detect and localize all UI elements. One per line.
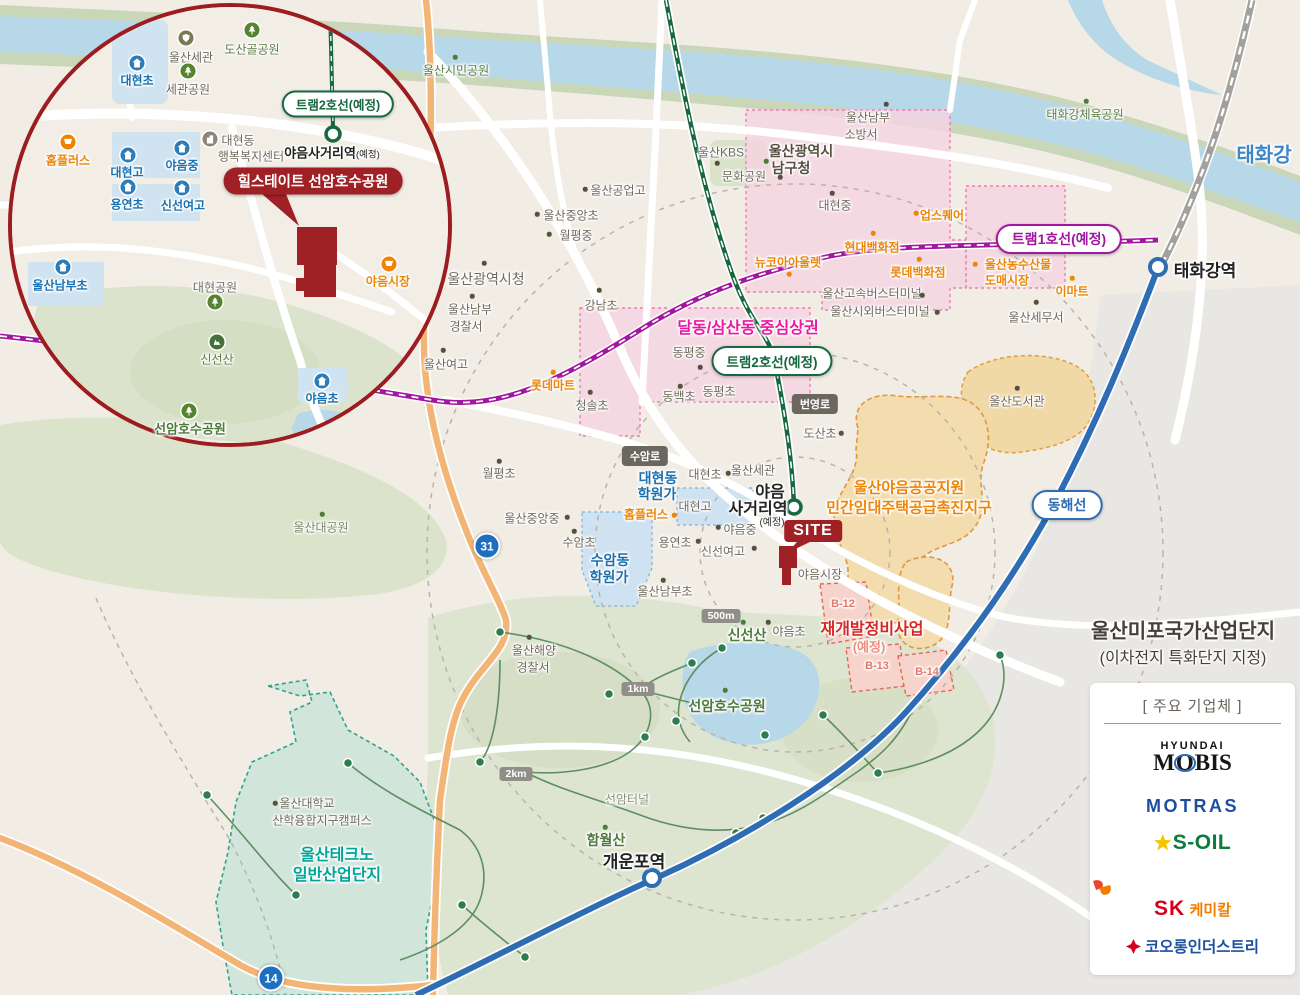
poi-dot (527, 635, 532, 640)
poi-dot (917, 257, 922, 262)
inset-geometry (8, 3, 452, 447)
label-customs-main: 울산세관 (731, 462, 775, 479)
poi-dot (696, 539, 701, 544)
label-hagwon1-l2: 학원가 (638, 484, 677, 504)
soil-wordmark: S-OIL (1173, 831, 1232, 854)
poi-dot (741, 620, 746, 625)
label-inset-seonam-park: 선암호수공원 (154, 419, 226, 438)
poi-dot (830, 191, 835, 196)
donghae-badge: 동해선 (1032, 490, 1103, 520)
radius-500m-label: 500m (702, 609, 741, 623)
label-fire-l1: 울산남부 (846, 109, 890, 126)
label-intercity-terminal: 울산시외버스터미널 (830, 303, 929, 320)
label-daehyeon-high-main: 대현고 (678, 498, 711, 515)
inset-station-name: 야음사거리역 (284, 146, 356, 161)
label-gaeunpo-station: 개운포역 (603, 848, 666, 873)
poi-dot (723, 688, 728, 693)
label-upsquare: 업스퀘어 (920, 207, 964, 224)
label-inset-yaeum-market: 야음시장 (366, 273, 410, 290)
poi-dot (603, 825, 608, 830)
label-yaeum-market-main: 야음시장 (798, 566, 842, 583)
poi-dot (787, 272, 792, 277)
park-icon (181, 64, 196, 79)
label-seonam-park-main: 선암호수공원 (688, 696, 765, 716)
poi-dot (551, 370, 556, 375)
label-dalsam-zone: 달동/삼산동 중심상권 (677, 314, 818, 338)
poi-dot (661, 578, 666, 583)
label-mipo-l2: (이차전지 특화단지 지정) (1100, 644, 1267, 668)
company-kolon: 코오롱인더스트리 (1090, 935, 1295, 957)
label-fire-l2: 소방서 (844, 126, 877, 143)
label-public-zone-l1: 울산야음공공지원 (854, 477, 964, 498)
sk-chemical-wordmark: 케미칼 (1190, 902, 1231, 919)
label-express-terminal: 울산고속버스터미널 (822, 285, 921, 302)
poi-dot (588, 390, 593, 395)
label-fish-l2: 도매시장 (985, 272, 1029, 289)
label-inset-daehyeon-park: 대현공원 (193, 279, 237, 296)
poi-dot (778, 175, 783, 180)
inset-tram2-badge: 트램2호선(예정) (282, 91, 394, 118)
label-cityhall: 울산광역시청 (447, 269, 524, 289)
zoom-inset-circle (8, 3, 452, 447)
label-yaeum-elem-main: 야음초 (772, 623, 805, 640)
label-dongbaek: 동백초 (662, 388, 695, 405)
poi-dot (935, 310, 940, 315)
poi-dot (482, 261, 487, 266)
label-citizen-park: 울산시민공원 (423, 62, 489, 79)
school-icon (121, 148, 136, 163)
mobis-m: M (1153, 750, 1175, 775)
school-icon (175, 141, 190, 156)
label-inset-yaeum-middle: 야음중 (165, 157, 198, 174)
label-tax-office: 울산세무서 (1008, 309, 1063, 326)
site-badge: SITE (784, 520, 842, 542)
tram1-badge: 트램1호선(예정) (996, 224, 1122, 254)
mart-icon (61, 135, 76, 150)
label-yeogo: 울산여고 (424, 356, 468, 373)
label-emart: 이마트 (1055, 283, 1088, 300)
school-icon (121, 180, 136, 195)
poi-dot (672, 513, 677, 518)
poi-dot (273, 801, 278, 806)
market-icon (382, 257, 397, 272)
poi-dot (871, 231, 876, 236)
radius-1km-label: 1km (621, 682, 654, 696)
label-inset-daehyeon-high: 대현고 (110, 164, 143, 181)
poi-dot (752, 546, 757, 551)
company-motras: MOTRAS (1090, 796, 1295, 817)
label-inset-yaeum-elem: 야음초 (305, 390, 338, 407)
poi-dot (470, 294, 475, 299)
label-inset-daehyeon-elem: 대현초 (120, 72, 153, 89)
kolon-wordmark: 코오롱인더스트리 (1145, 939, 1259, 956)
park-icon (245, 23, 260, 38)
poi-dot (1015, 386, 1020, 391)
label-cheongsol: 청솔초 (575, 397, 608, 414)
label-wolpyeong-mid: 월평중 (559, 227, 592, 244)
label-redev-l1: 재개발정비사업 (820, 615, 923, 639)
location-map: 울산세관 도산골공원 대현초 세관공원 홈플러스 대현동 행복복지센터 대현고 … (0, 0, 1300, 995)
label-kbs: 울산KBS (698, 144, 744, 161)
mobis-o-ring: O (1175, 752, 1195, 774)
radius-2km-label: 2km (499, 767, 532, 781)
community-center-icon (203, 132, 218, 147)
poi-dot (1084, 99, 1089, 104)
mobis-bis: BIS (1195, 750, 1232, 775)
poi-dot (1070, 276, 1075, 281)
label-inset-center-l1: 대현동 (221, 132, 254, 149)
company-hyundai-mobis: HYUNDAI MOBIS (1090, 741, 1295, 774)
legend-title: [ 주요 기업체 ] (1090, 695, 1295, 716)
label-daehyeon-elem-main: 대현초 (688, 466, 721, 483)
label-homeplus-main: 홈플러스 (624, 506, 668, 523)
school-icon (315, 374, 330, 389)
label-inset-dosangol-park: 도산골공원 (224, 41, 279, 58)
label-jungang-elem: 울산중앙초 (543, 207, 598, 224)
label-police-l1: 울산남부 (448, 301, 492, 318)
poi-dot (1034, 300, 1039, 305)
label-munhwa-park: 문화공원 (722, 168, 766, 185)
label-sinseon-mtn-main: 신선산 (728, 625, 767, 645)
label-inset-sinseon-mtn: 신선산 (200, 351, 233, 368)
label-redev-l2: (예정) (853, 637, 886, 656)
customs-icon (179, 31, 194, 46)
label-yaeum-mid: 야음중 (723, 521, 756, 538)
poi-dot (766, 620, 771, 625)
legend-divider (1104, 723, 1281, 724)
poi-dot (583, 187, 588, 192)
label-taehwagang-station: 태화강역 (1174, 257, 1237, 282)
poi-dot (497, 459, 502, 464)
school-icon (175, 181, 190, 196)
label-inset-yaeum-station: 야음사거리역(예정) (284, 143, 380, 162)
poi-dot (441, 348, 446, 353)
label-b13: B-13 (865, 660, 889, 672)
poi-dot (597, 288, 602, 293)
label-inset-center-l2: 행복복지센터 (218, 148, 284, 165)
label-fish-l1: 울산농수산물 (985, 256, 1051, 273)
kolon-flower-icon (1126, 939, 1141, 954)
label-public-zone-l2: 민간임대주택공급촉진지구 (826, 497, 992, 518)
label-lotte-dept: 롯데백화점 (890, 264, 945, 281)
hillstate-title-badge: 힐스테이트 선암호수공원 (224, 168, 403, 195)
label-b12: B-12 (831, 598, 855, 610)
route-31-badge: 31 (474, 533, 501, 560)
label-dosan: 도산초 (803, 425, 836, 442)
label-seonam-tunnel: 선암터널 (605, 791, 649, 808)
mountain-icon (210, 335, 225, 350)
label-daehyeon-mid: 대현중 (818, 197, 851, 214)
label-sports-park: 태화강체육공원 (1046, 106, 1123, 123)
label-hyundai-dept: 현대백화점 (844, 239, 899, 256)
poi-dot (884, 102, 889, 107)
school-icon (130, 56, 145, 71)
poi-dot (572, 529, 577, 534)
yaeum-station-ring (787, 500, 801, 514)
label-wolpyeong-elem: 월평초 (482, 465, 515, 482)
inset-station-suffix: (예정) (356, 150, 380, 161)
poi-dot (839, 431, 844, 436)
poi-dot (698, 365, 703, 370)
mobis-wordmark: MOBIS (1090, 752, 1295, 774)
poi-dot (565, 515, 570, 520)
tram2-badge-main: 트램2호선(예정) (711, 346, 832, 376)
label-univ-l2: 산학융합지구캠퍼스 (272, 812, 371, 829)
label-nambu-elem-main: 울산남부초 (637, 583, 692, 600)
school-icon (56, 260, 71, 275)
poi-dot (726, 471, 731, 476)
park-icon (182, 404, 197, 419)
label-inset-segwan-park: 세관공원 (166, 81, 210, 98)
label-yaeum-station-suffix: (예정) (759, 514, 784, 529)
label-library: 울산도서관 (989, 393, 1044, 410)
park-icon (208, 295, 223, 310)
label-lottemart: 롯데마트 (531, 377, 575, 394)
label-inset-nambu-elem: 울산남부초 (32, 277, 87, 294)
label-suam-elem: 수암초 (562, 534, 595, 551)
label-taehwa-river: 태화강 (1236, 139, 1291, 168)
label-police-l2: 경찰서 (449, 318, 482, 335)
label-yongyeon: 용연초 (658, 534, 691, 551)
label-gangnam: 강남초 (584, 297, 617, 314)
label-dongpyeong-mid: 동평중 (672, 344, 705, 361)
label-sinseon-girls-main: 신선여고 (701, 543, 745, 560)
company-sk-chemical: SK 케미칼 (1090, 879, 1295, 921)
label-inset-ulsan-customs: 울산세관 (169, 49, 213, 66)
label-inset-yongyeon-elem: 용연초 (110, 196, 143, 213)
label-coastg-l2: 경찰서 (516, 659, 549, 676)
poi-dot (547, 232, 552, 237)
route-14-badge: 14 (258, 965, 285, 992)
label-inset-sinseon-girls: 신선여고 (161, 197, 205, 214)
label-dongpyeong-elem: 동평초 (702, 383, 735, 400)
company-soil: S-OIL (1090, 831, 1295, 855)
label-b14: B-14 (915, 666, 939, 678)
label-tech-high: 울산공업고 (590, 182, 645, 199)
label-techno-l2: 일반산업단지 (293, 861, 381, 885)
poi-dot (678, 384, 683, 389)
poi-dot (716, 525, 721, 530)
poi-dot (453, 55, 458, 60)
label-jungang-mid: 울산중앙중 (504, 510, 559, 527)
sk-wordmark: SK (1154, 897, 1185, 920)
poi-dot (764, 159, 769, 164)
label-inset-homeplus: 홈플러스 (46, 152, 90, 169)
suam-ro-badge: 수암로 (622, 446, 668, 466)
taehwagang-station-ring (1150, 259, 1166, 275)
poi-dot (715, 161, 720, 166)
label-grand-park: 울산대공원 (293, 519, 348, 536)
label-hagwon2-l2: 학원가 (590, 567, 629, 587)
label-mipo-l1: 울산미포국가산업단지 (1091, 615, 1275, 644)
poi-dot (914, 211, 919, 216)
poi-dot (320, 512, 325, 517)
poi-dot (920, 293, 925, 298)
poi-dot (535, 212, 540, 217)
sk-butterfly-icon (1090, 879, 1112, 897)
label-univ-l1: 울산대학교 (279, 795, 334, 812)
soil-sun-icon (1154, 834, 1172, 852)
label-newcore: 뉴코아아울렛 (755, 254, 821, 271)
major-companies-panel: [ 주요 기업체 ] HYUNDAI MOBIS MOTRAS S-OIL SK… (1090, 683, 1295, 975)
byeongyeong-ro-badge: 번영로 (792, 394, 838, 414)
poi-dot (973, 262, 978, 267)
label-coastg-l1: 울산해양 (512, 642, 556, 659)
